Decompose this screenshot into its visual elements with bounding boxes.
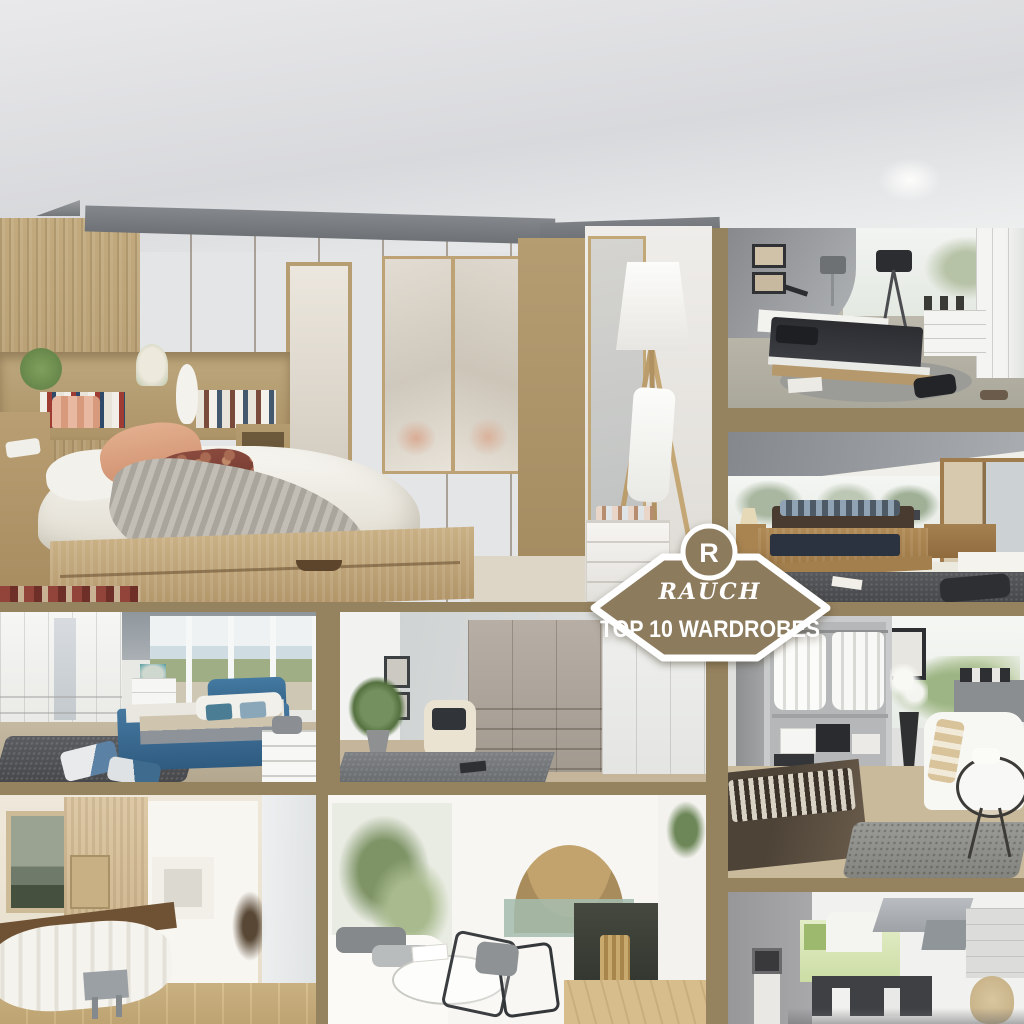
white-step	[958, 552, 1024, 574]
black-storage-box	[816, 724, 850, 752]
wood-floor	[564, 980, 706, 1024]
light-cabinets	[966, 908, 1024, 978]
white-storage-box	[780, 728, 816, 754]
white-nightstand	[262, 730, 316, 782]
framed-print-top	[752, 244, 786, 268]
badge-headline: TOP 10 WARDROBES	[600, 616, 820, 643]
mirror-reflection-pillow	[396, 420, 436, 456]
plant-top-right	[666, 801, 706, 859]
white-papers	[411, 943, 448, 962]
photo-blue-boxspring-bedroom	[0, 612, 316, 782]
badge-monogram: R	[699, 538, 719, 568]
red-rug-edge	[0, 586, 140, 602]
table-items	[972, 748, 1000, 764]
white-flowers	[890, 664, 928, 716]
badge-brand-script: RAUCH	[658, 579, 762, 605]
wardrobes-collage: R RAUCH TOP 10 WARDROBES	[0, 0, 1024, 1024]
grey-throw	[474, 941, 519, 977]
floor-lamp-shade	[616, 262, 690, 350]
photo-sketch-living-room	[328, 795, 706, 1024]
bench-leg-2	[116, 995, 122, 1017]
wall-cabinet	[70, 855, 110, 909]
boxes-on-divider	[960, 668, 1010, 682]
hanging-garment	[626, 387, 676, 504]
dark-floor-pillow	[939, 573, 1011, 602]
white-hood	[826, 912, 882, 952]
photo-sketch-kitchen	[728, 892, 1024, 1024]
bench-leg	[92, 997, 98, 1019]
corner-wardrobe-unit	[518, 238, 588, 602]
floor-shadow	[788, 1008, 1024, 1024]
white-pedestal	[754, 974, 780, 1024]
slippers	[980, 390, 1008, 400]
dark-cushion	[432, 708, 466, 730]
grey-rug	[340, 752, 555, 782]
grey-vent	[921, 920, 970, 950]
flower-vase	[136, 344, 168, 386]
drawer-handle-notch	[296, 560, 342, 571]
grey-lamp-stem	[831, 274, 834, 306]
green-window	[804, 924, 826, 950]
white-vase	[176, 364, 198, 424]
landscape-painting	[6, 811, 72, 913]
dark-pillows	[775, 325, 818, 346]
rauch-badge: R RAUCH TOP 10 WARDROBES	[586, 510, 836, 680]
grey-lamp-shade	[820, 256, 846, 274]
peach-bottles	[52, 396, 100, 428]
dark-art-object	[752, 948, 782, 974]
white-basket	[852, 734, 880, 754]
books-right	[196, 390, 276, 428]
dark-side-stool	[896, 712, 922, 766]
black-floor-cushion	[913, 373, 957, 399]
green-plant	[20, 348, 62, 390]
teal-cushion	[205, 703, 232, 721]
grey-bag	[272, 716, 302, 734]
photo-sketch-bedroom	[0, 795, 316, 1024]
mirror-reflection-pillow-2	[468, 418, 508, 456]
hanging-shirts-right	[832, 632, 884, 710]
round-glass-table	[956, 756, 1024, 818]
metal-bench	[83, 969, 129, 1000]
photo-modern-grey-bedroom	[728, 228, 1024, 408]
white-sideboard	[924, 310, 986, 356]
closet-shelf	[772, 714, 888, 718]
magazines	[788, 377, 823, 393]
ceiling-downlight	[878, 158, 942, 202]
blue-cushion	[239, 701, 266, 719]
speckled-rug	[842, 822, 1024, 878]
framed-print-bottom	[752, 272, 786, 294]
